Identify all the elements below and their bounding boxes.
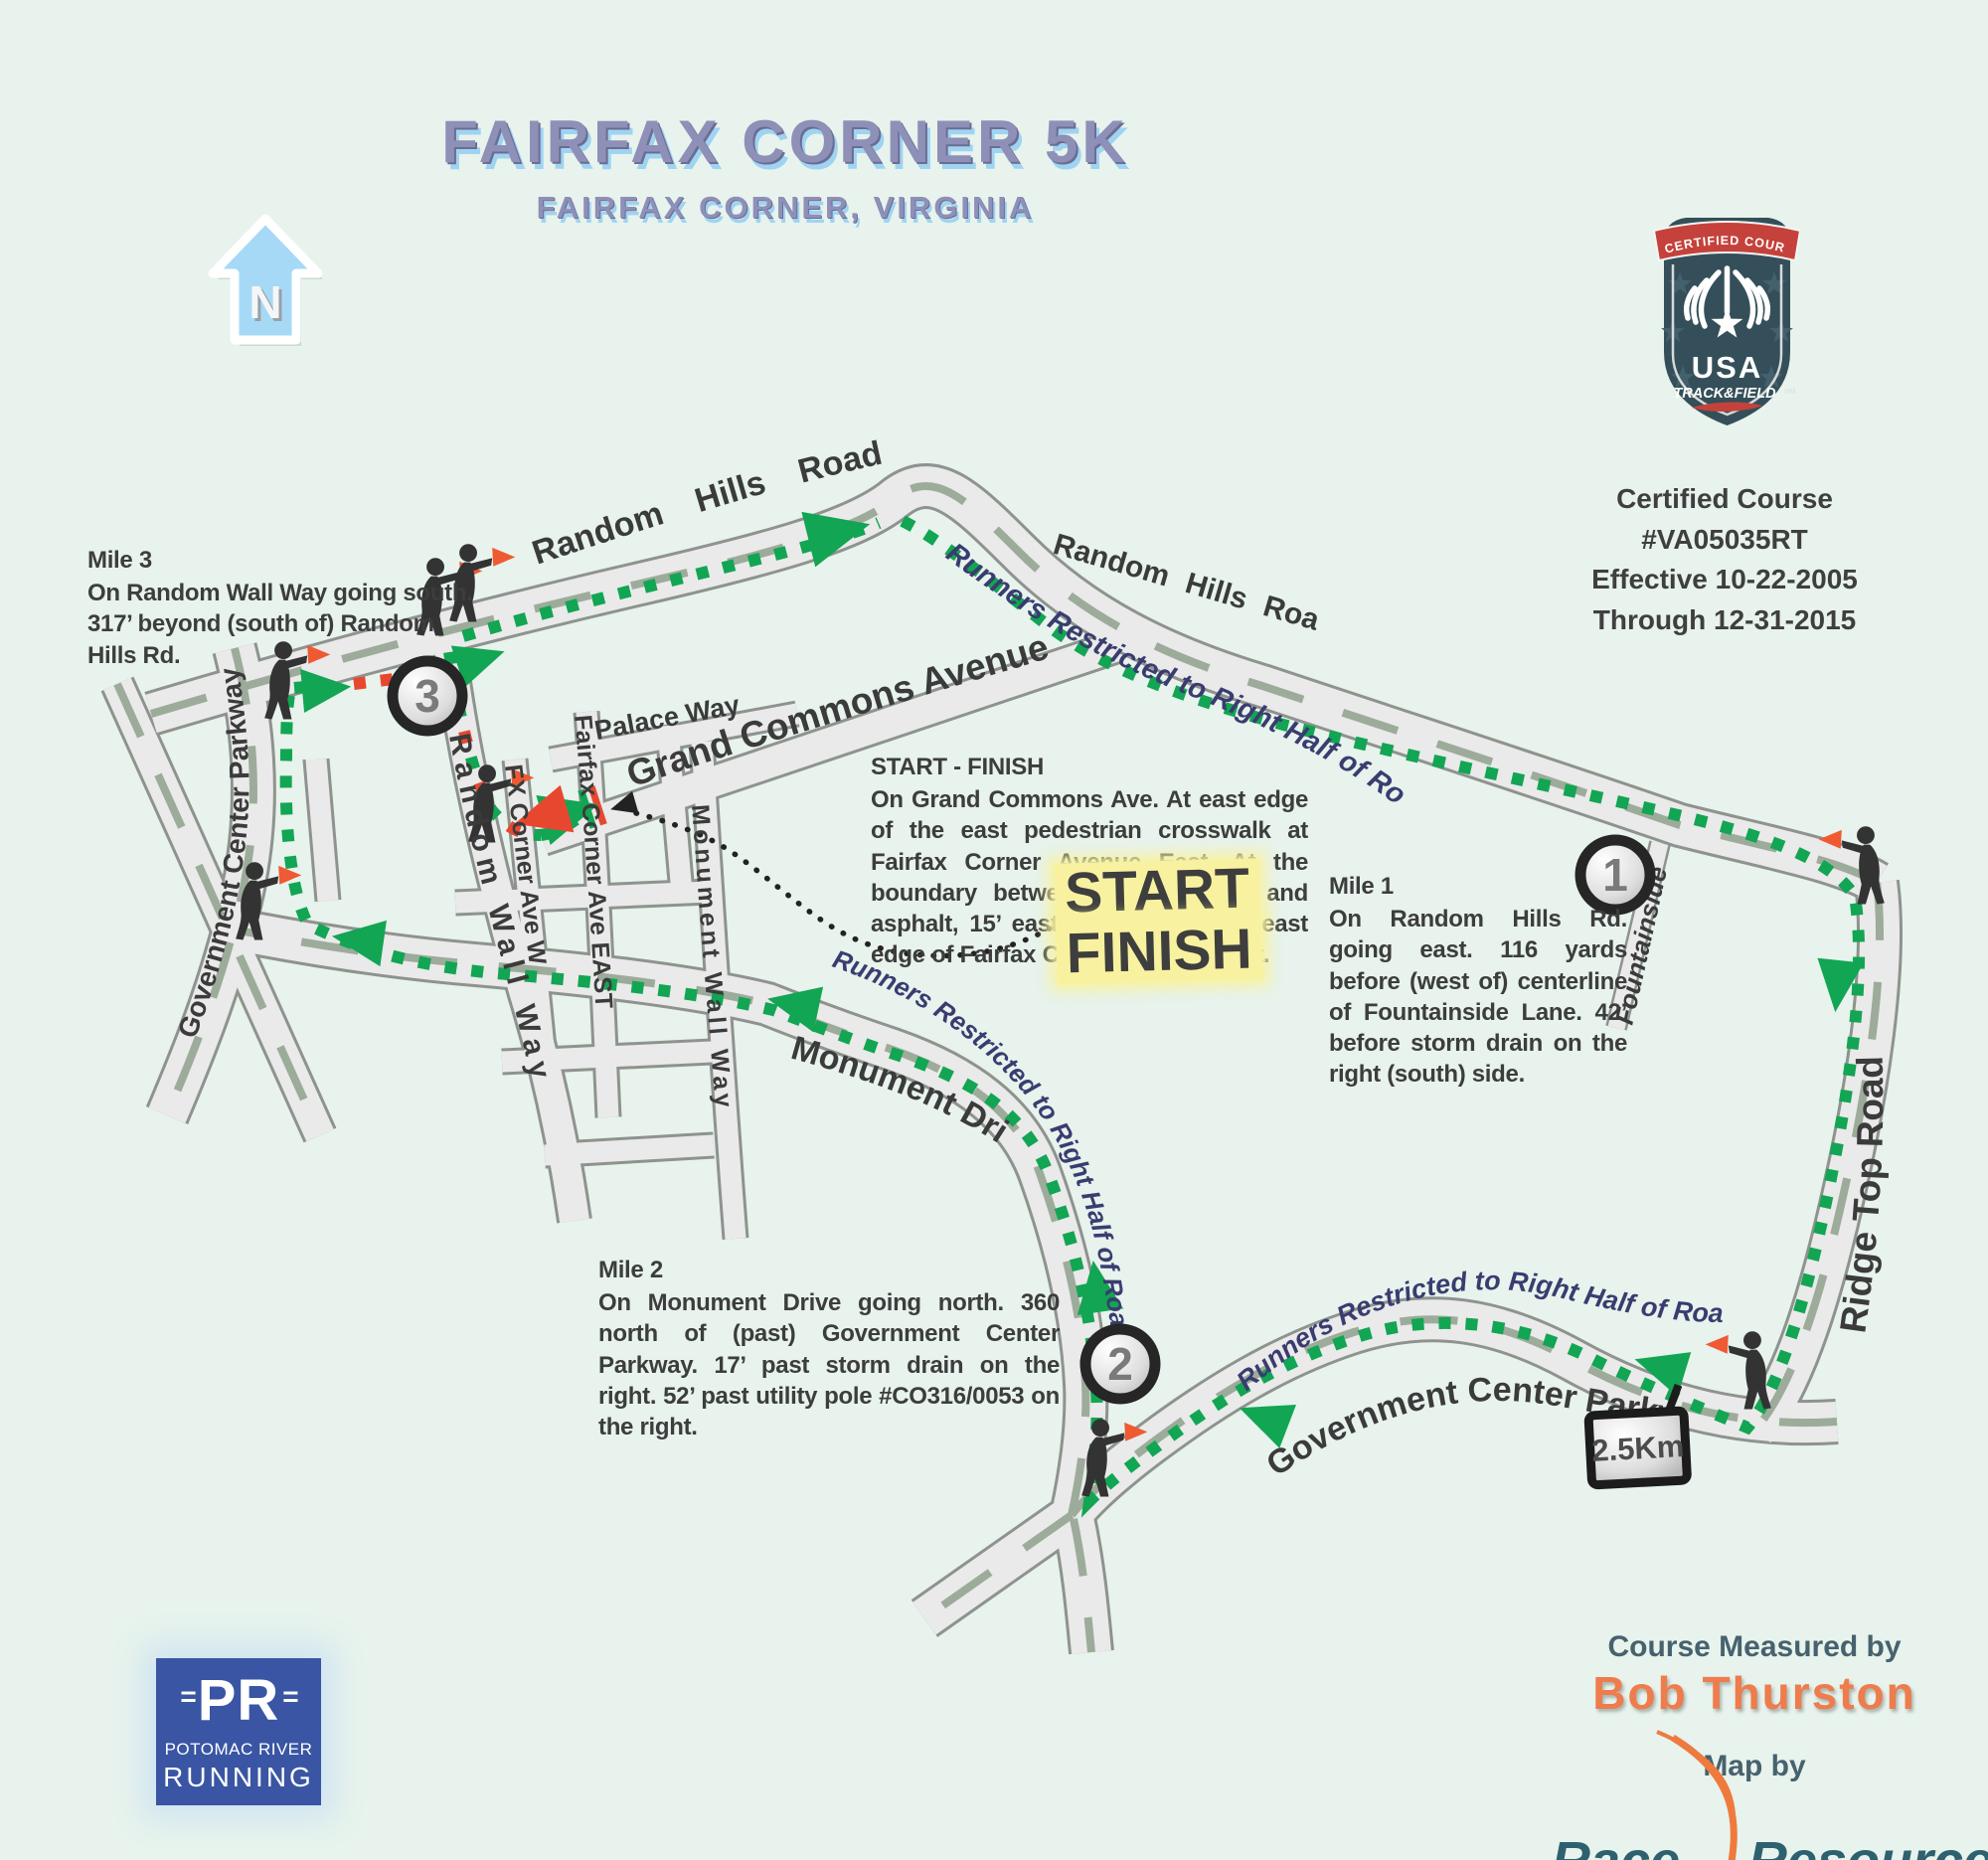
badge-usa-text: USA bbox=[1692, 350, 1762, 385]
north-arrow-icon: N N bbox=[213, 219, 323, 346]
mile-1-note: Mile 1 On Random Hills Rd. going east. 1… bbox=[1329, 871, 1627, 1090]
credits-block: Course Measured by Bob Thurston Map by R… bbox=[1536, 1630, 1973, 1860]
mile-1-note-title: Mile 1 bbox=[1329, 871, 1627, 902]
mile-3-note-title: Mile 3 bbox=[87, 545, 477, 576]
distance-sign-text: 2.5Km bbox=[1590, 1429, 1685, 1468]
brand-word-race: Race bbox=[1552, 1831, 1680, 1860]
certification-number: Certified Course #VA05035RT bbox=[1536, 479, 1913, 560]
mile-marker-3: 3 bbox=[393, 661, 462, 731]
page-title: FAIRFAX CORNER 5K bbox=[368, 107, 1203, 176]
pr-logo-line2: POTOMAC RIVER bbox=[160, 1740, 317, 1760]
pr-logo-equals-right: = bbox=[282, 1681, 296, 1712]
mile-2-number: 2 bbox=[1107, 1338, 1133, 1390]
start-label: START bbox=[1054, 858, 1259, 924]
certification-effective: Effective 10-22-2005 bbox=[1536, 560, 1913, 600]
badge-track-field-text: TRACK&FIELD bbox=[1673, 386, 1776, 402]
measured-by-name: Bob Thurston bbox=[1536, 1666, 1973, 1720]
mile-1-note-body: On Random Hills Rd. going east. 116 yard… bbox=[1329, 904, 1627, 1090]
brand-word-resources: Resources bbox=[1748, 1831, 1988, 1860]
start-finish-note-title: START - FINISH bbox=[871, 752, 1308, 782]
svg-text:Random Hills Road: Random Hills Road bbox=[0, 0, 1323, 637]
race-resources-logo: Race Resources bbox=[1536, 1783, 1973, 1860]
pr-logo-line3: RUNNING bbox=[160, 1762, 317, 1793]
page-subtitle: FAIRFAX CORNER, VIRGINIA bbox=[368, 190, 1203, 226]
mile-2-note-title: Mile 2 bbox=[598, 1255, 1060, 1285]
certification-through: Through 12-31-2015 bbox=[1536, 600, 1913, 641]
pr-logo-initials: PR bbox=[195, 1668, 283, 1733]
mile-marker-2: 2 bbox=[1085, 1329, 1155, 1399]
page-title-block: FAIRFAX CORNER 5K FAIRFAX CORNER, VIRGIN… bbox=[368, 107, 1203, 226]
measured-by-label: Course Measured by bbox=[1536, 1630, 1973, 1664]
mile-3-note-body: On Random Wall Way going south. 317’ bey… bbox=[87, 578, 477, 671]
mile-2-note-body: On Monument Drive going north. 360 north… bbox=[598, 1287, 1060, 1442]
badge-trademark: SM bbox=[1784, 387, 1795, 396]
potomac-river-running-logo: =PR= POTOMAC RIVER RUNNING bbox=[156, 1658, 321, 1805]
start-finish-marker-label: START FINISH bbox=[1054, 858, 1262, 985]
road-label-random-hills-2: Random Hills Road bbox=[0, 0, 1323, 637]
mile-3-note: Mile 3 On Random Wall Way going south. 3… bbox=[87, 545, 477, 671]
finish-label: FINISH bbox=[1056, 919, 1262, 985]
mile-2-note: Mile 2 On Monument Drive going north. 36… bbox=[598, 1255, 1060, 1442]
course-map-page: Random Hills Road Random Hills Road Runn… bbox=[0, 0, 1988, 1860]
certification-block: Certified Course #VA05035RT Effective 10… bbox=[1536, 479, 1913, 640]
pr-logo-equals-left: = bbox=[180, 1681, 194, 1712]
usatf-certified-badge: CERTIFIED COURSE USA TRACK&FIELD SM bbox=[1645, 196, 1800, 425]
north-letter: N bbox=[248, 276, 281, 328]
map-by-label: Map by bbox=[1536, 1750, 1973, 1783]
mile-3-number: 3 bbox=[414, 670, 440, 722]
